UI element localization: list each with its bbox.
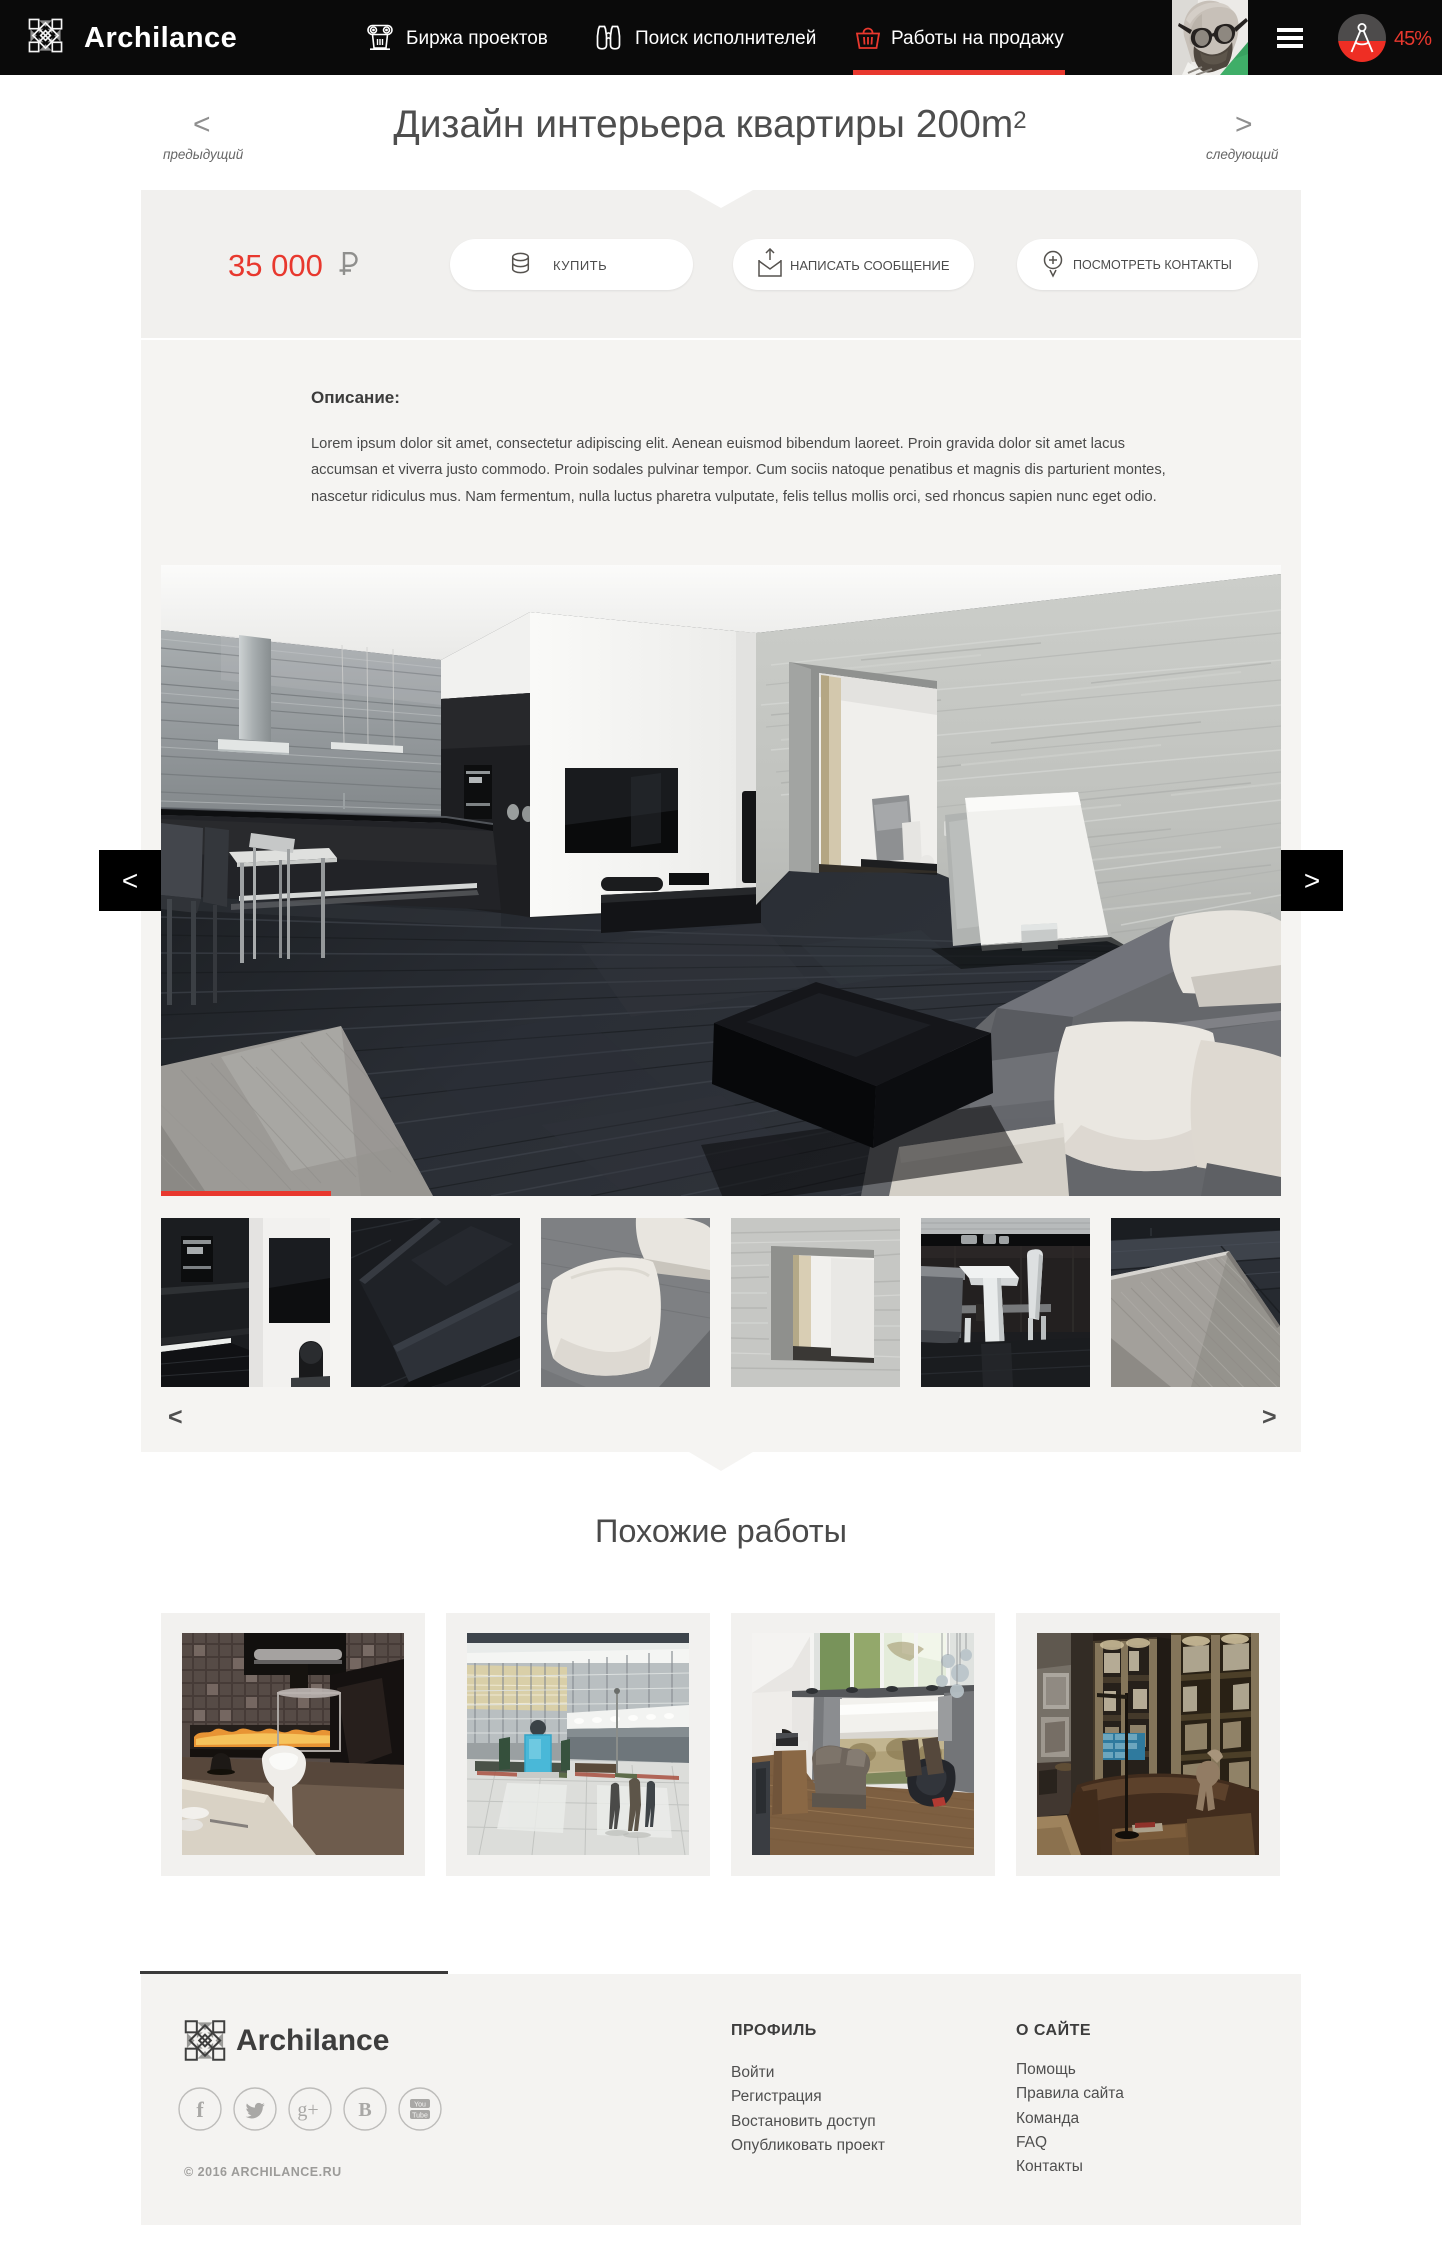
svg-text:В: В — [358, 2099, 371, 2121]
svg-text:g+: g+ — [297, 2099, 318, 2121]
svg-text:f: f — [196, 2097, 204, 2122]
svg-text:Tube: Tube — [412, 2113, 428, 2120]
svg-text:You: You — [414, 2102, 426, 2109]
